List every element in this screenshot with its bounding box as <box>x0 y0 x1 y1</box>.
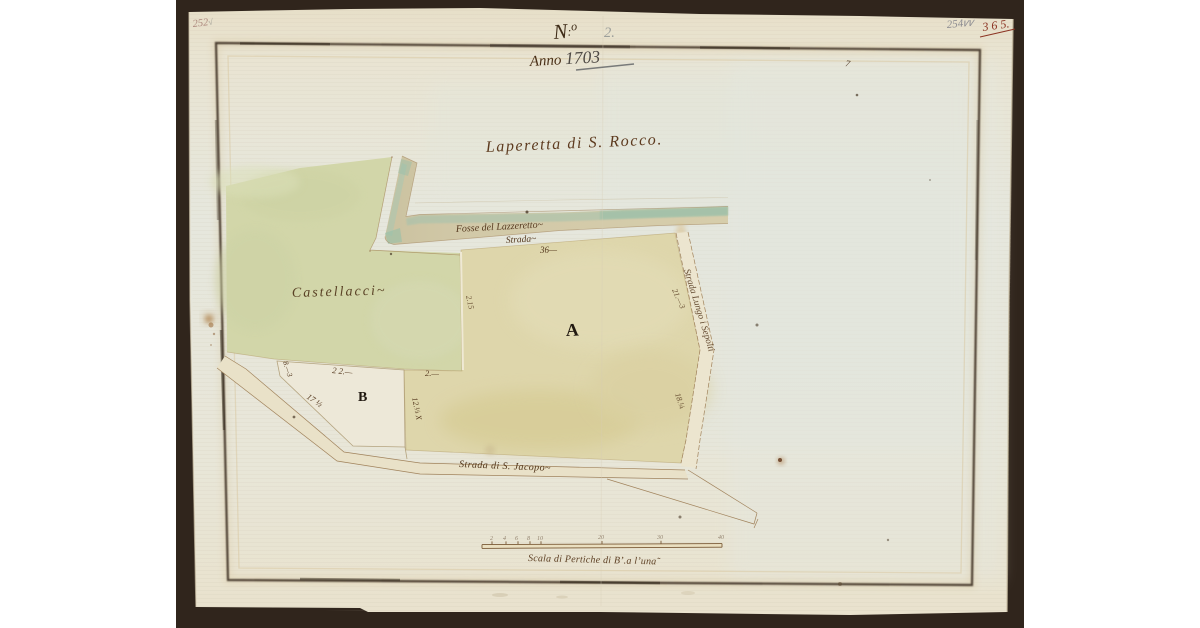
svg-text:4: 4 <box>503 535 506 542</box>
svg-text:10: 10 <box>537 536 543 542</box>
svg-text:30: 30 <box>656 535 663 541</box>
svg-text:2.: 2. <box>604 25 615 41</box>
svg-text:2.—: 2.— <box>425 368 439 378</box>
svg-text:8: 8 <box>527 536 530 542</box>
svg-text:6: 6 <box>515 536 518 542</box>
svg-text:36—: 36— <box>539 245 558 255</box>
svg-text:254𝑣𝑣: 254𝑣𝑣 <box>946 17 976 31</box>
svg-text:40: 40 <box>718 534 724 541</box>
svg-text:20: 20 <box>598 535 604 541</box>
svg-text:Castellacci~: Castellacci~ <box>292 284 387 301</box>
svg-text:Strada~: Strada~ <box>506 234 537 246</box>
svg-text:A: A <box>565 320 579 340</box>
svg-text:B: B <box>358 390 367 405</box>
svg-text:2: 2 <box>490 536 493 542</box>
